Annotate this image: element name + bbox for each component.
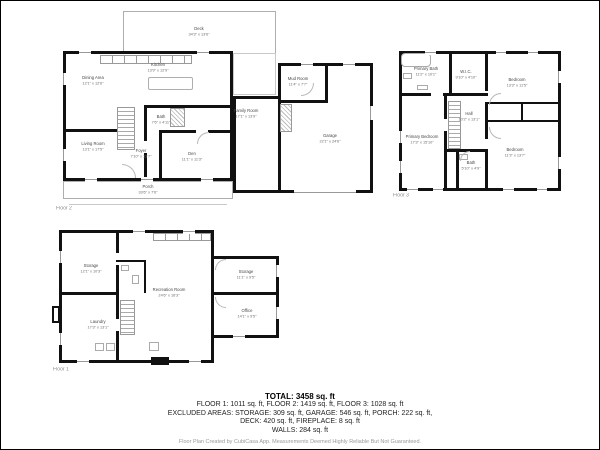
window bbox=[85, 177, 97, 182]
interior-wall bbox=[116, 230, 119, 363]
area-summary: TOTAL: 3458 sq. ft FLOOR 1: 1011 sq. ft,… bbox=[1, 392, 599, 445]
window bbox=[233, 334, 245, 339]
room-dims: 11'2" x 10'1" bbox=[414, 72, 438, 77]
room-name: Primary Bath bbox=[414, 67, 438, 72]
window bbox=[201, 177, 213, 182]
dryer-icon bbox=[106, 343, 115, 351]
window bbox=[141, 177, 153, 182]
window bbox=[133, 229, 145, 234]
room-label-bedroom1: Bedroom 13'3" x 11'5" bbox=[507, 78, 528, 88]
room-label-kitchen: Kitchen 13'9" x 12'9" bbox=[147, 63, 168, 73]
interior-wall bbox=[144, 105, 233, 108]
window bbox=[537, 187, 547, 192]
window bbox=[407, 187, 418, 192]
window bbox=[58, 251, 63, 263]
summary-walls: WALLS: 284 sq. ft bbox=[1, 427, 599, 436]
bay-window bbox=[52, 306, 60, 323]
room-label-hall: Hall 10'2" x 13'1" bbox=[458, 112, 479, 122]
summary-excluded-2: DECK: 420 sq. ft, FIREPLACE: 8 sq. ft bbox=[1, 418, 599, 427]
room-dims: 5'10" x 4'9" bbox=[462, 166, 481, 171]
shower-hatch bbox=[170, 108, 185, 127]
bathtub-icon bbox=[401, 53, 431, 67]
room-name: Mud Room bbox=[288, 77, 309, 82]
window bbox=[79, 50, 91, 55]
room-label-foyer: Foyer 7'10" x 13'7" bbox=[130, 149, 151, 159]
window bbox=[301, 62, 313, 67]
room-name: Family Room bbox=[234, 109, 259, 114]
room-dims: 11'4" x 7'7" bbox=[288, 82, 309, 87]
room-label-recreation: Recreation Room 24'6" x 16'3" bbox=[153, 288, 186, 298]
room-name: Primary Bedroom bbox=[406, 135, 439, 140]
window bbox=[503, 187, 514, 192]
room-dims: 34'3" x 13'6" bbox=[188, 32, 209, 37]
room-dims: 13'9" x 12'9" bbox=[147, 68, 168, 73]
room-name: Storage bbox=[237, 270, 256, 275]
room-dims: 10'2" x 13'1" bbox=[458, 117, 479, 122]
interior-wall bbox=[278, 100, 328, 103]
room-label-den: Den 11'1" x 11'3" bbox=[182, 152, 203, 162]
summary-floors: FLOOR 1: 1011 sq. ft, FLOOR 2: 1419 sq. … bbox=[1, 401, 599, 410]
room-label-primary-bedroom: Primary Bedroom 17'3" x 15'10" bbox=[406, 135, 439, 145]
room-label-garage: Garage 22'1" x 24'6" bbox=[319, 134, 340, 144]
room-dims: 33'6" x 7'6" bbox=[139, 190, 158, 195]
window bbox=[433, 187, 443, 192]
floor3-label: Floor 3 bbox=[393, 193, 409, 198]
room-dims: 11'1" x 11'3" bbox=[182, 157, 203, 162]
room-name: Dining Area bbox=[82, 76, 104, 81]
door-opening bbox=[444, 119, 447, 131]
room-dims: 11'1" x 9'5" bbox=[237, 275, 256, 280]
sink-icon bbox=[417, 85, 428, 90]
room-label-office: Office 14'1" x 9'5" bbox=[238, 309, 257, 319]
door-opening bbox=[431, 93, 443, 96]
kitchen-counter bbox=[100, 55, 192, 64]
room-name: Bedroom bbox=[505, 148, 526, 153]
room-dims: 14'1" x 9'5" bbox=[238, 314, 257, 319]
closet-divider bbox=[521, 102, 523, 122]
room-dims: 7'10" x 13'7" bbox=[130, 154, 151, 159]
window bbox=[425, 50, 436, 55]
window bbox=[61, 73, 66, 85]
summary-excluded-1: EXCLUDED AREAS: STORAGE: 309 sq. ft, GAR… bbox=[1, 410, 599, 419]
room-label-wic: W.I.C. 9'10" x 4'10" bbox=[455, 70, 476, 80]
window bbox=[398, 161, 403, 173]
window bbox=[58, 333, 63, 345]
shelving bbox=[153, 233, 211, 241]
window bbox=[343, 62, 355, 67]
floor-plan-sheet: Deck 34'3" x 13'6" Dining Area 12'1" x 1… bbox=[0, 0, 600, 450]
room-dims: 12'1" x 10'3" bbox=[80, 269, 101, 274]
room-label-storage1: Storage 12'1" x 10'3" bbox=[80, 264, 101, 274]
room-name: Bedroom bbox=[507, 78, 528, 83]
room-label-storage2: Storage 11'1" x 9'5" bbox=[237, 270, 256, 280]
sink-icon bbox=[132, 275, 139, 284]
entry-step bbox=[151, 357, 169, 365]
room-label-family: Family Room 17'1" x 13'9" bbox=[234, 109, 259, 119]
interior-wall bbox=[449, 51, 452, 96]
interior-wall bbox=[444, 93, 447, 191]
room-name: Laundry bbox=[87, 320, 108, 325]
toilet-icon bbox=[403, 73, 412, 79]
patio-outline bbox=[233, 53, 276, 95]
interior-wall bbox=[116, 260, 146, 262]
room-name: Living Room bbox=[81, 142, 104, 147]
room-dims: 17'1" x 13'9" bbox=[234, 114, 259, 119]
dimension-line bbox=[69, 204, 227, 205]
room-dims: 9'10" x 4'10" bbox=[455, 75, 476, 80]
window bbox=[556, 71, 561, 83]
room-label-bath: Bath 7'6" x 4'11" bbox=[152, 115, 171, 125]
floor1-exterior-walls bbox=[59, 230, 214, 363]
room-dims: 13'3" x 11'5" bbox=[507, 83, 528, 88]
door-opening bbox=[116, 319, 119, 331]
interior-wall bbox=[59, 292, 119, 295]
floor1-label: Floor 1 bbox=[53, 367, 69, 372]
room-dims: 24'6" x 16'3" bbox=[153, 293, 186, 298]
washer-icon bbox=[95, 343, 104, 351]
interior-wall bbox=[159, 130, 162, 181]
floor2-label: Floor 2 bbox=[56, 206, 72, 211]
window bbox=[496, 50, 506, 55]
room-dims: 7'6" x 4'11" bbox=[152, 120, 171, 125]
window bbox=[556, 157, 561, 169]
interior-wall bbox=[144, 260, 146, 293]
window bbox=[61, 149, 66, 161]
toilet-icon bbox=[121, 265, 129, 271]
stairs bbox=[448, 101, 461, 149]
room-label-primary-bath: Primary Bath 11'2" x 10'1" bbox=[414, 67, 438, 77]
room-name: Recreation Room bbox=[153, 288, 186, 293]
room-dims: 17'3" x 15'10" bbox=[406, 140, 439, 145]
room-label-laundry: Laundry 17'3" x 13'1" bbox=[87, 320, 108, 330]
room-dims: 12'1" x 12'6" bbox=[82, 81, 104, 86]
window bbox=[398, 131, 403, 143]
kitchen-island bbox=[148, 77, 193, 90]
stairs bbox=[117, 107, 135, 150]
garage-door bbox=[294, 190, 356, 195]
room-dims: 11'3" x 13'7" bbox=[505, 153, 526, 158]
stairs bbox=[120, 300, 135, 335]
window bbox=[197, 50, 209, 55]
interior-wall bbox=[63, 129, 119, 132]
window bbox=[77, 359, 89, 364]
room-label-deck: Deck 34'3" x 13'6" bbox=[188, 27, 209, 37]
interior-wall bbox=[211, 292, 279, 295]
room-label-living: Living Room 13'1" x 17'5" bbox=[81, 142, 104, 152]
closet-wall bbox=[488, 120, 561, 122]
room-label-mud: Mud Room 11'4" x 7'7" bbox=[288, 77, 309, 87]
window bbox=[274, 265, 279, 277]
door-opening bbox=[116, 253, 119, 265]
room-label-bedroom2: Bedroom 11'3" x 13'7" bbox=[505, 148, 526, 158]
window bbox=[183, 229, 195, 234]
utility-icon bbox=[149, 342, 159, 351]
room-label-dining: Dining Area 12'1" x 12'6" bbox=[82, 76, 104, 86]
window bbox=[189, 359, 201, 364]
interior-wall bbox=[325, 63, 328, 103]
room-dims: 17'3" x 13'1" bbox=[87, 325, 108, 330]
room-dims: 22'1" x 24'6" bbox=[319, 139, 340, 144]
window bbox=[368, 106, 373, 120]
room-label-porch: Porch 33'6" x 7'6" bbox=[139, 185, 158, 195]
summary-disclaimer: Floor Plan Created by CubiCasa App. Meas… bbox=[1, 439, 599, 445]
summary-total: TOTAL: 3458 sq. ft bbox=[1, 392, 599, 401]
window bbox=[528, 50, 538, 55]
stairs-hatch bbox=[280, 104, 292, 132]
window bbox=[274, 307, 279, 319]
room-label-bath3: Bath 5'10" x 4'9" bbox=[462, 161, 481, 171]
room-dims: 13'1" x 17'5" bbox=[81, 147, 104, 152]
